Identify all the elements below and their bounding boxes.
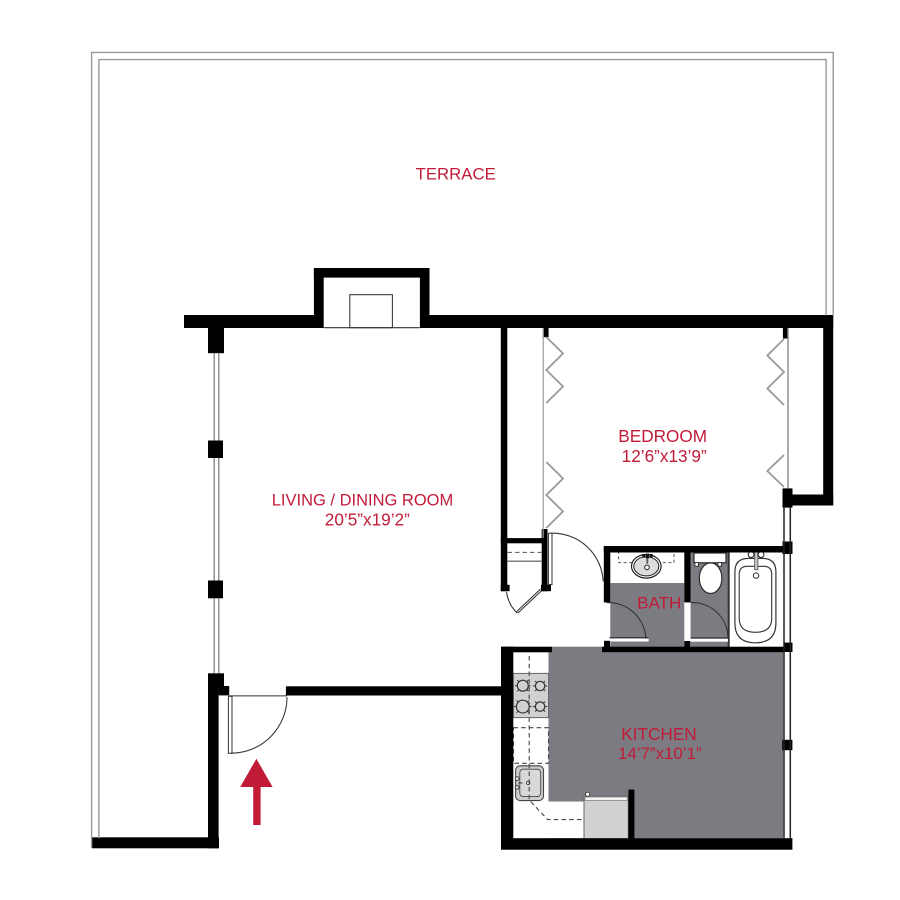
svg-text:BEDROOM: BEDROOM xyxy=(618,426,707,446)
svg-text:LIVING / DINING ROOM: LIVING / DINING ROOM xyxy=(272,492,454,510)
svg-text:12’6”x13’9”: 12’6”x13’9” xyxy=(622,446,707,466)
svg-text:BATH: BATH xyxy=(637,593,681,612)
svg-text:14’7”x10’1”: 14’7”x10’1” xyxy=(618,744,702,763)
svg-text:TERRACE: TERRACE xyxy=(416,164,496,183)
svg-text:KITCHEN: KITCHEN xyxy=(621,724,696,744)
svg-text:20’5”x19’2”: 20’5”x19’2” xyxy=(325,510,410,530)
